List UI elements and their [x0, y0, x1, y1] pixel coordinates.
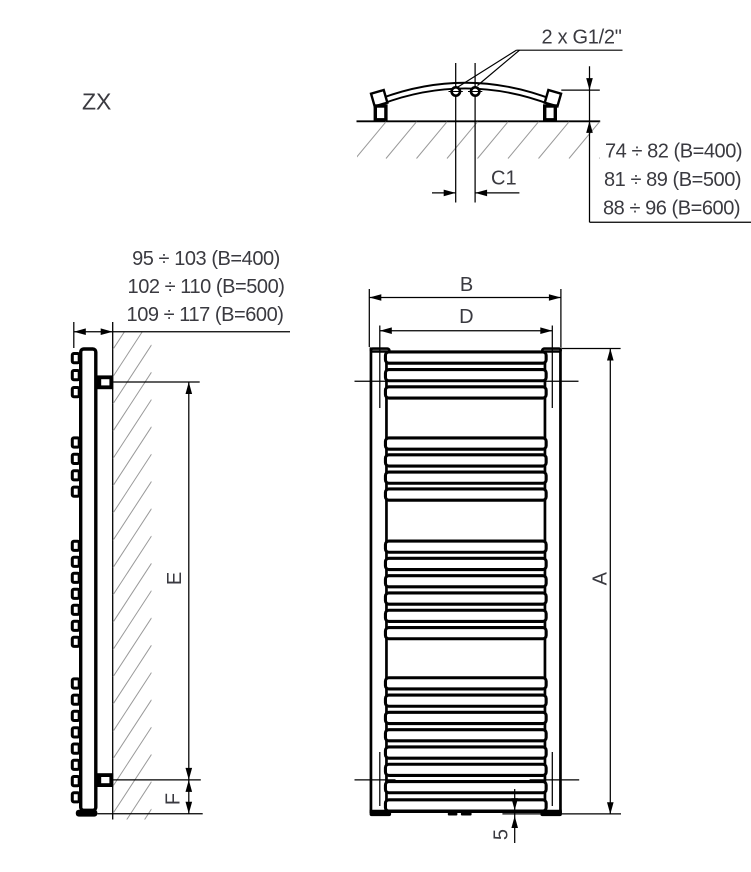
svg-text:B: B	[460, 274, 473, 296]
svg-text:88 ÷ 96 (B=600): 88 ÷ 96 (B=600)	[603, 197, 740, 219]
svg-text:F: F	[163, 793, 185, 805]
svg-text:109 ÷ 117 (B=600): 109 ÷ 117 (B=600)	[127, 304, 284, 326]
svg-text:E: E	[164, 572, 186, 585]
svg-text:ZX: ZX	[82, 89, 111, 115]
svg-text:81 ÷ 89 (B=500): 81 ÷ 89 (B=500)	[604, 169, 741, 191]
svg-text:5: 5	[490, 829, 512, 840]
svg-text:95 ÷ 103 (B=400): 95 ÷ 103 (B=400)	[132, 248, 280, 270]
svg-text:C1: C1	[491, 167, 517, 189]
svg-text:A: A	[589, 571, 611, 585]
svg-text:102 ÷ 110 (B=500): 102 ÷ 110 (B=500)	[128, 276, 285, 298]
svg-text:74 ÷ 82 (B=400): 74 ÷ 82 (B=400)	[605, 140, 742, 162]
svg-text:D: D	[459, 306, 473, 328]
svg-text:2 x G1/2": 2 x G1/2"	[542, 27, 622, 49]
